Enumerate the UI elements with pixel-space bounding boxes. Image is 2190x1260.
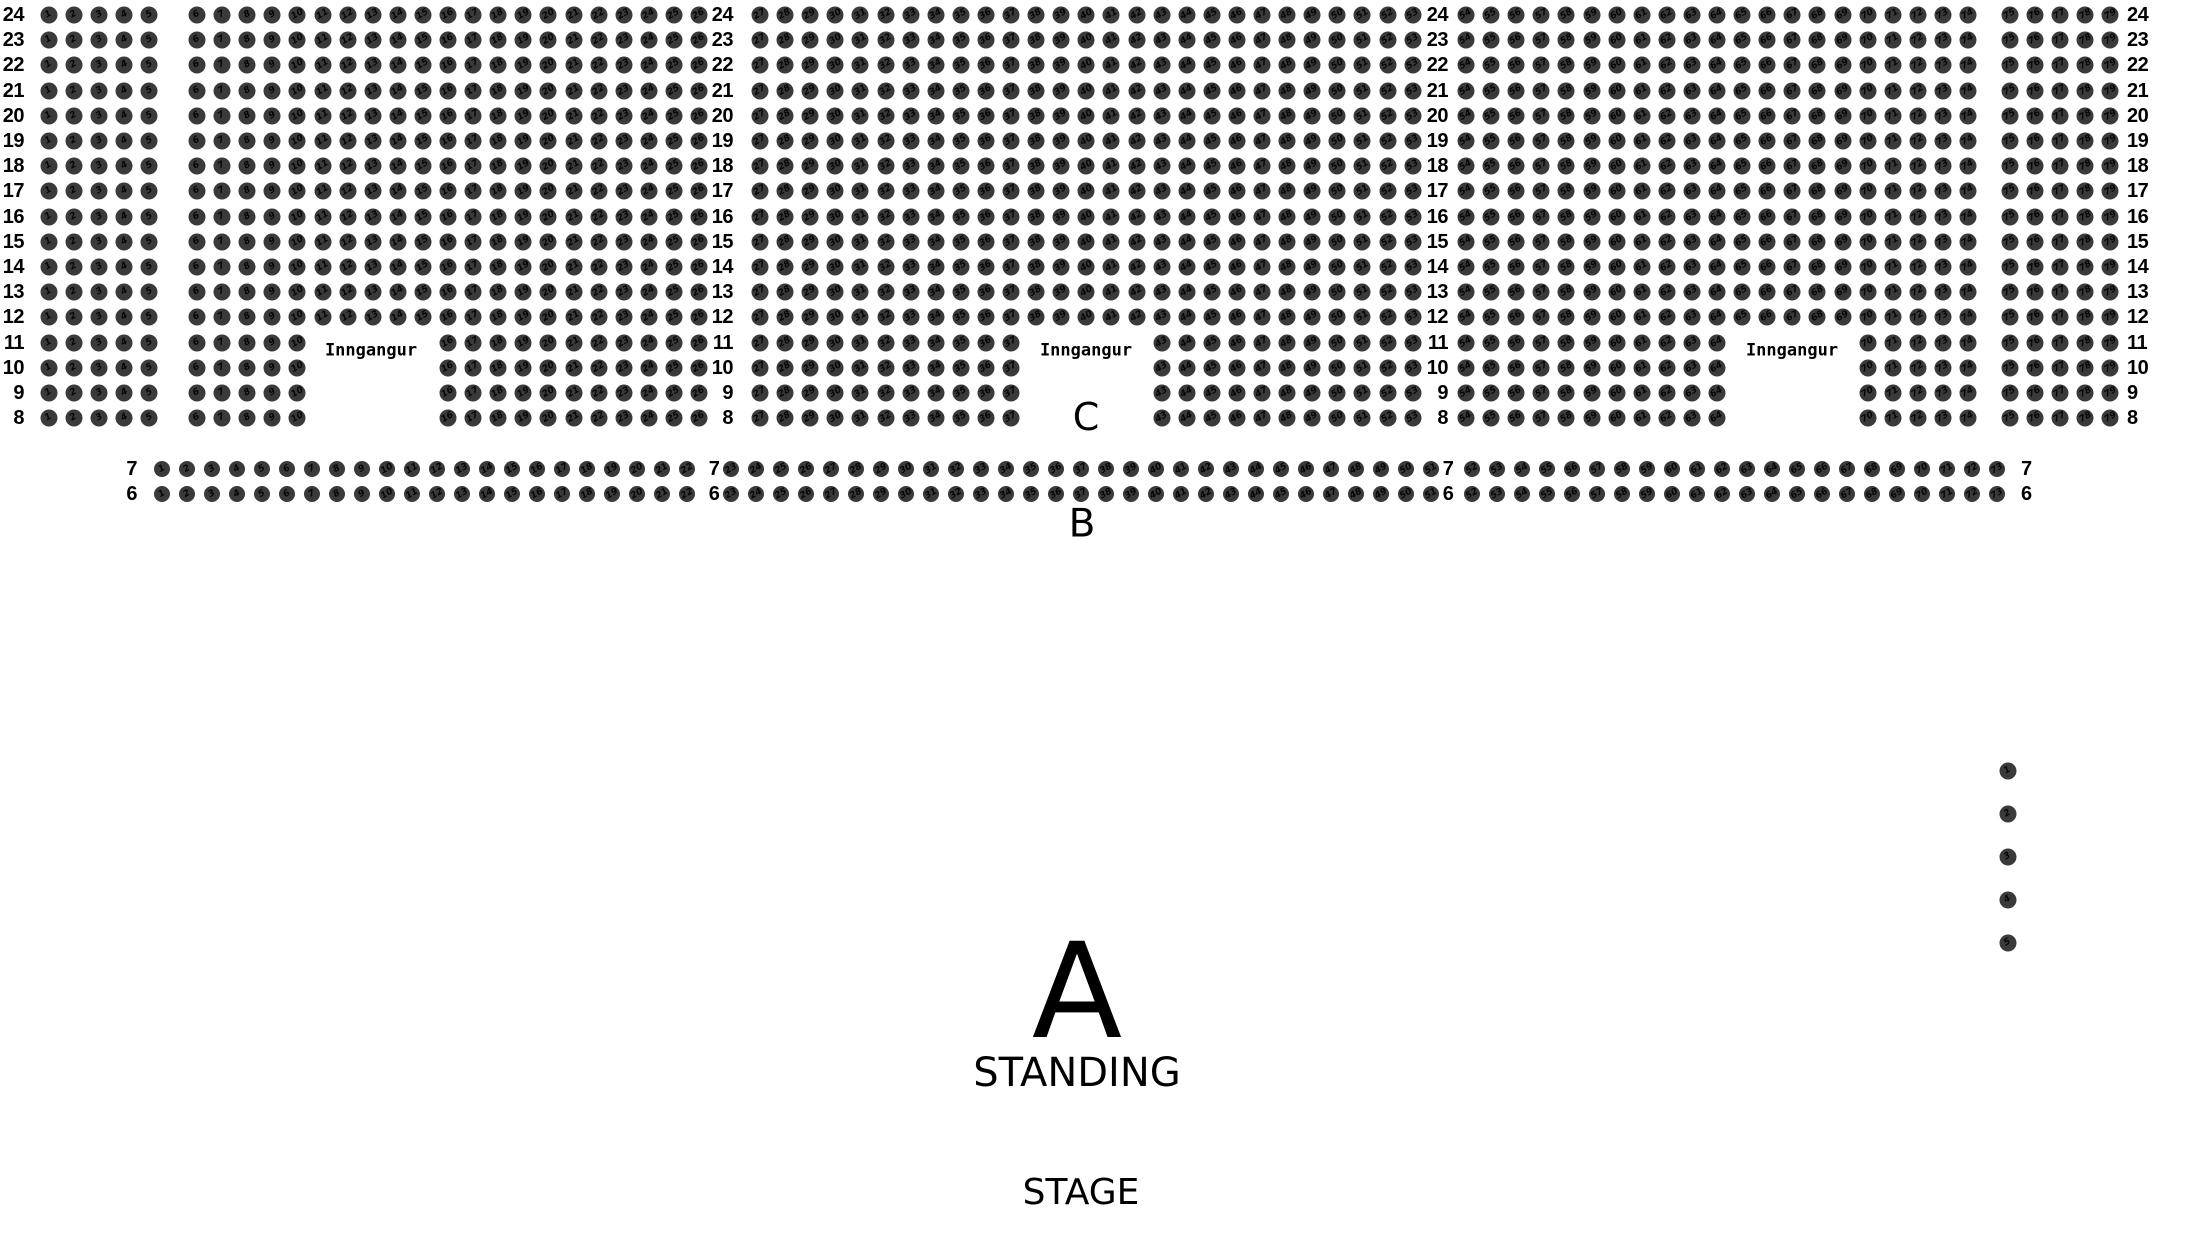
seat-dot[interactable]: 18 (490, 32, 507, 49)
seat-dot[interactable]: 11 (314, 57, 331, 74)
seat-dot[interactable]: 31 (923, 461, 939, 477)
seat-dot[interactable]: 25 (773, 486, 789, 502)
seat-dot[interactable]: 42 (1198, 486, 1214, 502)
seat-dot[interactable]: 68 (1809, 233, 1826, 250)
seat-dot[interactable]: 68 (1809, 133, 1826, 150)
seat-dot[interactable]: 77 (2052, 309, 2069, 326)
seat-dot[interactable]: 30 (827, 284, 844, 301)
seat-dot[interactable]: 77 (2052, 233, 2069, 250)
seat-dot[interactable]: 59 (1583, 133, 1600, 150)
seat-dot[interactable]: 71 (1884, 57, 1901, 74)
seat-dot[interactable]: 12 (339, 7, 356, 24)
seat-dot[interactable]: 54 (1458, 385, 1475, 402)
seat-dot[interactable]: 15 (414, 233, 431, 250)
seat-dot[interactable]: 50 (1398, 461, 1414, 477)
seat-dot[interactable]: 31 (852, 158, 869, 175)
seat-dot[interactable]: 4 (116, 309, 133, 326)
seat-dot[interactable]: 51 (1354, 7, 1371, 24)
seat-dot[interactable]: 3 (91, 32, 108, 49)
seat-dot[interactable]: 7 (214, 107, 231, 124)
seat-dot[interactable]: 65 (1734, 309, 1751, 326)
seat-dot[interactable]: 76 (2027, 158, 2044, 175)
seat-dot[interactable]: 63 (1683, 32, 1700, 49)
seat-dot[interactable]: 41 (1103, 208, 1120, 225)
seat-dot[interactable]: 2 (66, 57, 83, 74)
seat-dot[interactable]: 33 (902, 183, 919, 200)
seat-dot[interactable]: 21 (565, 32, 582, 49)
seat-dot[interactable]: 62 (1658, 158, 1675, 175)
seat-dot[interactable]: 34 (998, 461, 1014, 477)
seat-dot[interactable]: 78 (2077, 208, 2094, 225)
seat-dot[interactable]: 70 (1859, 309, 1876, 326)
seat-dot[interactable]: 75 (2002, 32, 2019, 49)
seat-dot[interactable]: 12 (339, 183, 356, 200)
seat-dot[interactable]: 41 (1103, 183, 1120, 200)
seat-dot[interactable]: 79 (2102, 359, 2119, 376)
seat-dot[interactable]: 44 (1178, 183, 1195, 200)
seat-dot[interactable]: 2 (66, 284, 83, 301)
seat-dot[interactable]: 72 (1909, 259, 1926, 276)
seat-dot[interactable]: 18 (490, 57, 507, 74)
seat-dot[interactable]: 73 (1934, 7, 1951, 24)
seat-dot[interactable]: 56 (1508, 309, 1525, 326)
seat-dot[interactable]: 71 (1884, 410, 1901, 427)
seat-dot[interactable]: 75 (2002, 284, 2019, 301)
seat-dot[interactable]: 66 (1759, 158, 1776, 175)
seat-dot[interactable]: 17 (465, 284, 482, 301)
seat-dot[interactable]: 62 (1658, 183, 1675, 200)
seat-dot[interactable]: 41 (1103, 133, 1120, 150)
seat-dot[interactable]: 67 (1784, 57, 1801, 74)
seat-dot[interactable]: 74 (1960, 183, 1977, 200)
seat-dot[interactable]: 67 (1784, 259, 1801, 276)
seat-dot[interactable]: 72 (1964, 486, 1980, 502)
seat-dot[interactable]: 37 (1003, 359, 1020, 376)
seat-dot[interactable]: 35 (952, 107, 969, 124)
seat-dot[interactable]: 35 (952, 233, 969, 250)
seat-dot[interactable]: 75 (2002, 233, 2019, 250)
seat-dot[interactable]: 6 (189, 359, 206, 376)
seat-dot[interactable]: 62 (1658, 259, 1675, 276)
seat-dot[interactable]: 33 (902, 410, 919, 427)
seat-dot[interactable]: 37 (1003, 284, 1020, 301)
seat-dot[interactable]: 16 (529, 461, 545, 477)
seat-dot[interactable]: 22 (590, 7, 607, 24)
seat-dot[interactable]: 51 (1354, 359, 1371, 376)
seat-dot[interactable]: 18 (490, 133, 507, 150)
seat-dot[interactable]: 37 (1003, 334, 1020, 351)
seat-dot[interactable]: 57 (1533, 82, 1550, 99)
seat-dot[interactable]: 63 (1683, 7, 1700, 24)
seat-dot[interactable]: 3 (91, 259, 108, 276)
seat-dot[interactable]: 38 (1028, 133, 1045, 150)
seat-dot[interactable]: 34 (927, 334, 944, 351)
seat-dot[interactable]: 35 (952, 284, 969, 301)
seat-dot[interactable]: 43 (1153, 57, 1170, 74)
seat-dot[interactable]: 46 (1298, 461, 1314, 477)
seat-dot[interactable]: 8 (239, 233, 256, 250)
seat-dot[interactable]: 61 (1633, 284, 1650, 301)
seat-dot[interactable]: 42 (1128, 107, 1145, 124)
seat-dot[interactable]: 63 (1683, 133, 1700, 150)
seat-dot[interactable]: 45 (1203, 183, 1220, 200)
seat-dot[interactable]: 44 (1248, 486, 1264, 502)
seat-dot[interactable]: 57 (1589, 461, 1605, 477)
seat-dot[interactable]: 72 (1909, 233, 1926, 250)
seat-dot[interactable]: 68 (1864, 461, 1880, 477)
seat-dot[interactable]: 28 (777, 57, 794, 74)
seat-dot[interactable]: 34 (927, 208, 944, 225)
seat-dot[interactable]: 58 (1558, 82, 1575, 99)
seat-dot[interactable]: 41 (1103, 107, 1120, 124)
seat-dot[interactable]: 44 (1178, 385, 1195, 402)
seat-dot[interactable]: 35 (952, 183, 969, 200)
seat-dot[interactable]: 16 (440, 57, 457, 74)
seat-dot[interactable]: 56 (1508, 233, 1525, 250)
seat-dot[interactable]: 4 (116, 385, 133, 402)
seat-dot[interactable]: 37 (1003, 133, 1020, 150)
seat-dot[interactable]: 59 (1583, 32, 1600, 49)
seat-dot[interactable]: 8 (239, 7, 256, 24)
seat-dot[interactable]: 57 (1533, 309, 1550, 326)
seat-dot[interactable]: 61 (1689, 486, 1705, 502)
seat-dot[interactable]: 6 (189, 385, 206, 402)
seat-dot[interactable]: 5 (254, 461, 270, 477)
seat-dot[interactable]: 75 (2002, 183, 2019, 200)
seat-dot[interactable]: 32 (877, 208, 894, 225)
seat-dot[interactable]: 51 (1354, 57, 1371, 74)
seat-dot[interactable]: 54 (1458, 359, 1475, 376)
seat-dot[interactable]: 54 (1458, 233, 1475, 250)
seat-dot[interactable]: 32 (877, 410, 894, 427)
seat-dot[interactable]: 65 (1734, 107, 1751, 124)
seat-dot[interactable]: 67 (1784, 7, 1801, 24)
seat-dot[interactable]: 66 (1759, 259, 1776, 276)
seat-dot[interactable]: 47 (1254, 7, 1271, 24)
seat-dot[interactable]: 55 (1483, 233, 1500, 250)
seat-dot[interactable]: 15 (414, 208, 431, 225)
seat-dot[interactable]: 6 (189, 309, 206, 326)
seat-dot[interactable]: 76 (2027, 410, 2044, 427)
seat-dot[interactable]: 72 (1909, 107, 1926, 124)
seat-dot[interactable]: 9 (264, 309, 281, 326)
seat-dot[interactable]: 69 (1889, 486, 1905, 502)
seat-dot[interactable]: 44 (1178, 309, 1195, 326)
seat-dot[interactable]: 73 (1934, 309, 1951, 326)
seat-dot[interactable]: 74 (1960, 309, 1977, 326)
seat-dot[interactable]: 43 (1153, 259, 1170, 276)
seat-dot[interactable]: 66 (1759, 133, 1776, 150)
seat-dot[interactable]: 24 (640, 233, 657, 250)
seat-dot[interactable]: 79 (2102, 107, 2119, 124)
seat-dot[interactable]: 16 (440, 107, 457, 124)
seat-dot[interactable]: 42 (1128, 259, 1145, 276)
seat-dot[interactable]: 49 (1304, 233, 1321, 250)
seat-dot[interactable]: 38 (1028, 309, 1045, 326)
seat-dot[interactable]: 1 (154, 486, 170, 502)
seat-dot[interactable]: 79 (2102, 82, 2119, 99)
seat-dot[interactable]: 32 (877, 309, 894, 326)
seat-dot[interactable]: 24 (640, 183, 657, 200)
seat-dot[interactable]: 60 (1608, 32, 1625, 49)
seat-dot[interactable]: 68 (1864, 486, 1880, 502)
seat-dot[interactable]: 39 (1053, 32, 1070, 49)
seat-dot[interactable]: 42 (1128, 208, 1145, 225)
seat-dot[interactable]: 74 (1960, 107, 1977, 124)
seat-dot[interactable]: 3 (91, 57, 108, 74)
seat-dot[interactable]: 60 (1608, 133, 1625, 150)
seat-dot[interactable]: 68 (1809, 7, 1826, 24)
seat-dot[interactable]: 40 (1078, 107, 1095, 124)
seat-dot[interactable]: 48 (1279, 410, 1296, 427)
seat-dot[interactable]: 15 (414, 183, 431, 200)
seat-dot[interactable]: 73 (1934, 410, 1951, 427)
seat-dot[interactable]: 9 (264, 359, 281, 376)
seat-dot[interactable]: 70 (1859, 233, 1876, 250)
seat-dot[interactable]: 54 (1458, 259, 1475, 276)
seat-dot[interactable]: 17 (465, 233, 482, 250)
seat-dot[interactable]: 48 (1279, 359, 1296, 376)
seat-dot[interactable]: 40 (1078, 259, 1095, 276)
seat-dot[interactable]: 55 (1483, 359, 1500, 376)
seat-dot[interactable]: 2 (66, 32, 83, 49)
seat-dot[interactable]: 70 (1859, 359, 1876, 376)
seat-dot[interactable]: 5 (141, 385, 158, 402)
seat-dot[interactable]: 21 (565, 309, 582, 326)
seat-dot[interactable]: 78 (2077, 233, 2094, 250)
seat-dot[interactable]: 11 (404, 461, 420, 477)
seat-dot[interactable]: 55 (1483, 183, 1500, 200)
seat-dot[interactable]: 74 (1960, 57, 1977, 74)
seat-dot[interactable]: 43 (1153, 7, 1170, 24)
seat-dot[interactable]: 48 (1279, 208, 1296, 225)
seat-dot[interactable]: 22 (590, 309, 607, 326)
seat-dot[interactable]: 3 (91, 359, 108, 376)
seat-dot[interactable]: 29 (802, 57, 819, 74)
seat-dot[interactable]: 7 (214, 284, 231, 301)
seat-dot[interactable]: 19 (515, 133, 532, 150)
seat-dot[interactable]: 21 (565, 7, 582, 24)
seat-dot[interactable]: 49 (1304, 107, 1321, 124)
seat-dot[interactable]: 4 (116, 183, 133, 200)
seat-dot[interactable]: 2 (66, 7, 83, 24)
seat-dot[interactable]: 63 (1683, 359, 1700, 376)
seat-dot[interactable]: 50 (1329, 410, 1346, 427)
seat-dot[interactable]: 9 (264, 107, 281, 124)
seat-dot[interactable]: 73 (1934, 259, 1951, 276)
seat-dot[interactable]: 35 (952, 82, 969, 99)
seat-dot[interactable]: 75 (2002, 259, 2019, 276)
seat-dot[interactable]: 54 (1458, 133, 1475, 150)
seat-dot[interactable]: 79 (2102, 208, 2119, 225)
seat-dot[interactable]: 44 (1248, 461, 1264, 477)
seat-dot[interactable]: 7 (214, 208, 231, 225)
seat-dot[interactable]: 79 (2102, 32, 2119, 49)
seat-dot[interactable]: 36 (977, 107, 994, 124)
seat-dot[interactable]: 19 (515, 309, 532, 326)
seat-dot[interactable]: 40 (1148, 461, 1164, 477)
seat-dot[interactable]: 73 (1934, 158, 1951, 175)
seat-dot[interactable]: 45 (1273, 486, 1289, 502)
seat-dot[interactable]: 33 (902, 359, 919, 376)
seat-dot[interactable]: 14 (389, 133, 406, 150)
seat-dot[interactable]: 69 (1834, 309, 1851, 326)
seat-dot[interactable]: 9 (264, 158, 281, 175)
seat-dot[interactable]: 18 (579, 461, 595, 477)
seat-dot[interactable]: 30 (827, 32, 844, 49)
seat-dot[interactable]: 23 (615, 309, 632, 326)
seat-dot[interactable]: 54 (1458, 334, 1475, 351)
seat-dot[interactable]: 43 (1153, 410, 1170, 427)
seat-dot[interactable]: 9 (264, 57, 281, 74)
seat-dot[interactable]: 24 (640, 385, 657, 402)
seat-dot[interactable]: 71 (1884, 82, 1901, 99)
seat-dot[interactable]: 1 (41, 259, 58, 276)
seat-dot[interactable]: 34 (927, 410, 944, 427)
seat-dot[interactable]: 54 (1458, 158, 1475, 175)
seat-dot[interactable]: 72 (1909, 158, 1926, 175)
seat-dot[interactable]: 54 (1514, 461, 1530, 477)
seat-dot[interactable]: 27 (752, 107, 769, 124)
seat-dot[interactable]: 67 (1784, 183, 1801, 200)
seat-dot[interactable]: 68 (1809, 32, 1826, 49)
seat-dot[interactable]: 3 (91, 385, 108, 402)
seat-dot[interactable]: 23 (615, 208, 632, 225)
seat-dot[interactable]: 5 (141, 410, 158, 427)
seat-dot[interactable]: 48 (1279, 7, 1296, 24)
seat-dot[interactable]: 34 (927, 183, 944, 200)
seat-dot[interactable]: 58 (1558, 259, 1575, 276)
seat-dot[interactable]: 65 (1734, 133, 1751, 150)
seat-dot[interactable]: 20 (540, 158, 557, 175)
seat-dot[interactable]: 16 (440, 309, 457, 326)
seat-dot[interactable]: 30 (827, 7, 844, 24)
seat-dot[interactable]: 38 (1028, 158, 1045, 175)
seat-dot[interactable]: 36 (977, 158, 994, 175)
seat-dot[interactable]: 73 (1934, 334, 1951, 351)
seat-dot[interactable]: 15 (414, 259, 431, 276)
seat-dot[interactable]: 42 (1128, 32, 1145, 49)
seat-dot[interactable]: 77 (2052, 183, 2069, 200)
seat-dot[interactable]: 24 (640, 208, 657, 225)
seat-dot[interactable]: 20 (540, 7, 557, 24)
seat-dot[interactable]: 16 (440, 82, 457, 99)
seat-dot[interactable]: 27 (752, 82, 769, 99)
seat-dot[interactable]: 37 (1003, 82, 1020, 99)
seat-dot[interactable]: 35 (952, 259, 969, 276)
seat-dot[interactable]: 28 (777, 32, 794, 49)
seat-dot[interactable]: 60 (1608, 259, 1625, 276)
seat-dot[interactable]: 43 (1153, 233, 1170, 250)
seat-dot[interactable]: 6 (189, 57, 206, 74)
seat-dot[interactable]: 28 (777, 309, 794, 326)
seat-dot[interactable]: 48 (1279, 133, 1296, 150)
seat-dot[interactable]: 3 (91, 133, 108, 150)
seat-dot[interactable]: 57 (1533, 158, 1550, 175)
seat-dot[interactable]: 44 (1178, 284, 1195, 301)
seat-dot[interactable]: 45 (1203, 309, 1220, 326)
seat-dot[interactable]: 18 (490, 359, 507, 376)
seat-dot[interactable]: 35 (1023, 486, 1039, 502)
seat-dot[interactable]: 40 (1078, 284, 1095, 301)
seat-dot[interactable]: 32 (877, 7, 894, 24)
seat-dot[interactable]: 56 (1508, 259, 1525, 276)
seat-dot[interactable]: 8 (239, 284, 256, 301)
seat-dot[interactable]: 63 (1683, 334, 1700, 351)
seat-dot[interactable]: 59 (1583, 410, 1600, 427)
seat-dot[interactable]: 15 (414, 32, 431, 49)
seat-dot[interactable]: 48 (1279, 284, 1296, 301)
seat-dot[interactable]: 61 (1633, 208, 1650, 225)
seat-dot[interactable]: 30 (827, 309, 844, 326)
seat-dot[interactable]: 77 (2052, 359, 2069, 376)
seat-dot[interactable]: 3 (91, 309, 108, 326)
seat-dot[interactable]: 62 (1658, 32, 1675, 49)
seat-dot[interactable]: 16 (440, 359, 457, 376)
seat-dot[interactable]: 3 (91, 334, 108, 351)
seat-dot[interactable]: 47 (1254, 158, 1271, 175)
seat-dot[interactable]: 71 (1939, 461, 1955, 477)
seat-dot[interactable]: 70 (1859, 158, 1876, 175)
seat-dot[interactable]: 78 (2077, 57, 2094, 74)
seat-dot[interactable]: 13 (364, 32, 381, 49)
seat-dot[interactable]: 51 (1354, 284, 1371, 301)
seat-dot[interactable]: 37 (1003, 410, 1020, 427)
seat-dot[interactable]: 31 (852, 208, 869, 225)
seat-dot[interactable]: 76 (2027, 208, 2044, 225)
seat-dot[interactable]: 12 (339, 208, 356, 225)
seat-dot[interactable]: 17 (554, 461, 570, 477)
seat-dot[interactable]: 35 (952, 208, 969, 225)
seat-dot[interactable]: 54 (1458, 107, 1475, 124)
seat-dot[interactable]: 12 (339, 309, 356, 326)
seat-dot[interactable]: 48 (1279, 385, 1296, 402)
seat-dot[interactable]: 61 (1633, 32, 1650, 49)
seat-dot[interactable]: 27 (752, 208, 769, 225)
seat-dot[interactable]: 58 (1558, 57, 1575, 74)
seat-dot[interactable]: 28 (777, 233, 794, 250)
seat-dot[interactable]: 60 (1608, 385, 1625, 402)
seat-dot[interactable]: 38 (1028, 82, 1045, 99)
seat-dot[interactable]: 36 (977, 284, 994, 301)
seat-dot[interactable]: 6 (189, 183, 206, 200)
seat-dot[interactable]: 55 (1483, 385, 1500, 402)
seat-dot[interactable]: 6 (189, 259, 206, 276)
seat-dot[interactable]: 1 (41, 233, 58, 250)
seat-dot[interactable]: 13 (364, 233, 381, 250)
seat-dot[interactable]: 59 (1583, 107, 1600, 124)
seat-dot[interactable]: 77 (2052, 259, 2069, 276)
seat-dot[interactable]: 76 (2027, 284, 2044, 301)
seat-dot[interactable]: 10 (289, 309, 306, 326)
seat-dot[interactable]: 21 (565, 334, 582, 351)
seat-dot[interactable]: 43 (1153, 133, 1170, 150)
seat-dot[interactable]: 62 (1658, 359, 1675, 376)
seat-dot[interactable]: 10 (289, 32, 306, 49)
seat-dot[interactable]: 64 (1709, 158, 1726, 175)
seat-dot[interactable]: 12 (339, 284, 356, 301)
seat-dot[interactable]: 78 (2077, 183, 2094, 200)
seat-dot[interactable]: 20 (540, 208, 557, 225)
seat-dot[interactable]: 5 (254, 486, 270, 502)
seat-dot[interactable]: 19 (604, 486, 620, 502)
seat-dot[interactable]: 63 (1683, 259, 1700, 276)
seat-dot[interactable]: 44 (1178, 410, 1195, 427)
seat-dot[interactable]: 55 (1483, 284, 1500, 301)
seat-dot[interactable]: 28 (777, 133, 794, 150)
seat-dot[interactable]: 9 (264, 82, 281, 99)
seat-dot[interactable]: 56 (1508, 57, 1525, 74)
